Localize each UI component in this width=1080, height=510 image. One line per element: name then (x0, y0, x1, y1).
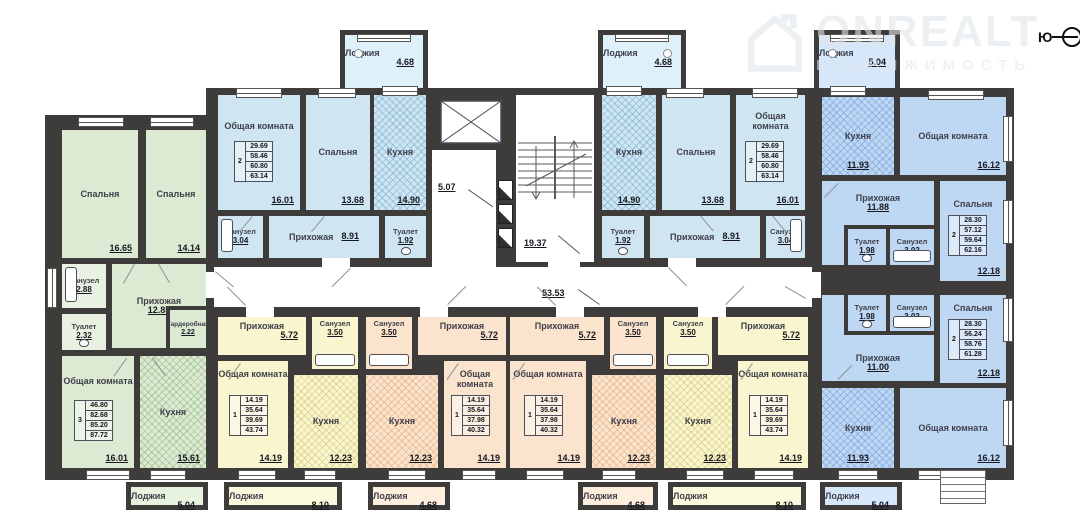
room-label: Прихожая (535, 321, 579, 331)
room-area: 8.91 (341, 232, 359, 242)
room-area: 14.19 (477, 454, 500, 464)
toilet-icon (618, 247, 628, 255)
apartment-stamp: 228.30 57.12 59.64 62.16 (948, 215, 987, 256)
stamp-value: 35.64 (761, 406, 788, 416)
stamp-value: 46.80 (86, 401, 113, 411)
elevator-icon (440, 100, 502, 144)
room-area: 14.19 (779, 454, 802, 464)
elevator-lobby (432, 150, 496, 267)
room-label: Спальня (677, 147, 716, 157)
loggia: Лоджия 8.10 (224, 482, 342, 510)
column-marker (663, 49, 672, 58)
room-area: 5.72 (280, 331, 298, 341)
balcony-door (838, 470, 878, 480)
stamp-rooms: 2 (235, 142, 246, 182)
window (752, 88, 798, 98)
window (47, 268, 57, 308)
door-opening (322, 258, 350, 267)
room-wc: Туалет 1.92 (385, 216, 426, 258)
compass-south-label: Ю (1038, 29, 1052, 45)
shaft-icon (498, 204, 513, 224)
room-label: Прихожая (741, 321, 785, 331)
toilet-icon (401, 247, 411, 255)
compass-rose-icon (1062, 27, 1080, 47)
entrance-steps (940, 470, 986, 504)
room-wc: Туалет 1.92 (602, 216, 644, 258)
shaft-icon (498, 228, 513, 248)
window (1003, 200, 1013, 244)
room-kitchen: Кухня 14.90 (602, 95, 656, 210)
room-label: Общая комната (918, 131, 987, 141)
room-bathroom: Санузел 3.50 (366, 317, 412, 369)
room-bedroom: Спальня 228.30 57.12 59.64 62.16 12.18 (940, 181, 1006, 281)
room-label: Прихожая (289, 232, 333, 242)
stamp-value: 87.72 (86, 431, 113, 441)
room-area: 11.00 (867, 363, 889, 373)
room-living: Общая комната 114.19 35.64 37.98 40.32 1… (444, 361, 506, 468)
stamp-value: 43.74 (241, 426, 268, 436)
room-area: 4.68 (396, 58, 414, 68)
door-opening (556, 307, 584, 317)
window (86, 470, 130, 480)
loggia: Лоджия 4.68 (598, 30, 686, 88)
room-label: Кухня (389, 416, 415, 426)
stamp-value: 35.64 (463, 406, 490, 416)
apartment-stamp: 229.69 58.46 60.80 63.14 (745, 141, 784, 182)
stamp-value: 39.69 (241, 416, 268, 426)
door-opening (807, 272, 821, 298)
stamp-value: 57.12 (960, 226, 987, 236)
stamp-rooms: 1 (525, 396, 536, 436)
stamp-rooms: 3 (75, 401, 86, 441)
room-bathroom: Санузел 3.50 (610, 317, 656, 369)
room-label: Кухня (845, 131, 871, 141)
bathtub-icon (315, 354, 355, 366)
room-label: Общая комната (444, 369, 506, 390)
room-label: Общая комната (513, 369, 582, 379)
stamp-value: 35.64 (241, 406, 268, 416)
room-bedroom: Спальня 13.68 (662, 95, 730, 210)
room-area: 5.72 (480, 331, 498, 341)
window (1003, 400, 1013, 446)
stamp-value: 40.32 (463, 426, 490, 436)
room-label: Кухня (616, 147, 642, 157)
room-kitchen: Кухня 12.23 (366, 375, 438, 468)
room-bathroom: Санузел 2.88 (62, 264, 106, 308)
stamp-value: 63.14 (757, 172, 784, 182)
stamp-value: 14.19 (241, 396, 268, 406)
loggia: Лоджия 4.68 (368, 482, 450, 510)
stamp-value: 28.30 (960, 216, 987, 226)
room-kitchen: Кухня 11.93 (822, 388, 894, 468)
loggia: Лоджия 5.04 (126, 482, 208, 510)
room-bathroom: Санузел 3.03 (890, 295, 934, 331)
door-opening (420, 307, 448, 317)
loggia: Лоджия 4.68 (340, 30, 428, 88)
window (1003, 116, 1013, 162)
room-area: 3.50 (327, 329, 343, 338)
room-wc: Туалет 2.32 (62, 314, 106, 350)
window (150, 117, 194, 127)
apartment-stamp: 228.30 56.24 58.76 61.28 (948, 319, 987, 360)
room-bathroom: Санузел 3.50 (312, 317, 358, 369)
window (238, 470, 276, 480)
toilet-icon (862, 320, 872, 328)
room-area: 15.61 (177, 454, 200, 464)
stamp-value: 43.74 (761, 426, 788, 436)
loggia-window (357, 34, 412, 42)
balcony-door (602, 470, 636, 480)
stamp-rooms: 2 (746, 142, 757, 182)
room-area: 16.01 (105, 454, 128, 464)
stamp-value: 37.98 (463, 416, 490, 426)
balcony-door (388, 470, 426, 480)
bathtub-icon (221, 219, 233, 252)
room-area: 8.10 (311, 501, 329, 510)
room-label: Общая комната (63, 376, 132, 386)
room-wc: Туалет 1.98 (848, 229, 886, 265)
room-area: 16.01 (271, 196, 294, 206)
room-living: Общая комната 16.12 (900, 388, 1006, 468)
room-kitchen: Кухня 12.23 (294, 375, 358, 468)
stamp-value: 14.19 (536, 396, 563, 406)
window (1003, 298, 1013, 342)
room-area: 8.91 (722, 232, 740, 242)
room-label: Спальня (157, 189, 196, 199)
room-label: Прихожая (240, 321, 284, 331)
room-living: Общая комната 16.12 (900, 97, 1006, 175)
watermark-house-icon (742, 11, 808, 73)
room-label: Общая комната (738, 369, 807, 379)
stamp-value: 85.20 (86, 421, 113, 431)
loggia: Лоджия 4.68 (578, 482, 658, 510)
room-area: 14.90 (602, 196, 656, 206)
room-label: Спальня (954, 303, 993, 313)
room-hallway: Прихожая 5.72 (510, 317, 604, 355)
window (928, 90, 984, 100)
stamp-value: 56.24 (960, 330, 987, 340)
stamp-value: 37.98 (536, 416, 563, 426)
stamp-value: 58.46 (757, 152, 784, 162)
lobby-area: 5.07 (438, 182, 456, 192)
room-area: 4.68 (419, 501, 437, 510)
stamp-value: 58.76 (960, 340, 987, 350)
stairs-area: 19.37 (524, 238, 547, 248)
corridor (214, 267, 812, 307)
watermark-subtitle: НЕДВИЖИМОСТЬ (816, 58, 1039, 73)
balcony-door (686, 470, 724, 480)
stamp-rooms: 1 (230, 396, 241, 436)
room-label: Общая комната (736, 111, 805, 132)
bathtub-icon (65, 267, 77, 302)
room-label: Кухня (160, 407, 186, 417)
room-area: 11.93 (822, 454, 894, 464)
watermark-brand: ONREALT (816, 10, 1039, 54)
window (462, 470, 496, 480)
room-area: 14.90 (397, 196, 420, 206)
room-bathroom: Санузел 3.04 (766, 216, 805, 258)
room-label: Кухня (845, 423, 871, 433)
room-area: 12.23 (409, 454, 432, 464)
room-area: 14.14 (177, 244, 200, 254)
room-kitchen: Кухня 15.61 (140, 356, 206, 468)
stamp-value: 62.16 (960, 246, 987, 256)
stamp-rooms: 1 (452, 396, 463, 436)
apartment-stamp: 114.19 35.64 39.69 43.74 (229, 395, 268, 436)
window (236, 88, 282, 98)
room-wc: Туалет 1.98 (848, 295, 886, 331)
room-bedroom: Спальня 14.14 (146, 130, 206, 258)
room-label: Кухня (685, 416, 711, 426)
room-bedroom: Спальня 16.65 (62, 130, 138, 258)
column-marker (354, 49, 363, 58)
room-bedroom: Спальня 228.30 56.24 58.76 61.28 12.18 (940, 295, 1006, 383)
stamp-value: 29.69 (757, 142, 784, 152)
loggia-window (615, 34, 670, 42)
stamp-value: 29.69 (246, 142, 273, 152)
balcony-door (304, 470, 336, 480)
room-area: 5.72 (782, 331, 800, 341)
room-area: 1.92 (615, 237, 631, 246)
floorplan-canvas: Лоджия 4.68 Лоджия 4.68 Лоджия 5.04 Лодж… (0, 0, 1080, 510)
door-opening (246, 307, 274, 317)
room-kitchen: Кухня 11.93 (822, 97, 894, 175)
stamp-value: 40.32 (536, 426, 563, 436)
apartment-stamp: 114.19 35.64 39.69 43.74 (749, 395, 788, 436)
door-opening (548, 258, 580, 267)
loggia: Лоджия 5.04 (820, 482, 902, 510)
room-area: 16.12 (977, 454, 1000, 464)
apartment-stamp: 229.69 58.46 60.80 63.14 (234, 141, 273, 182)
window (78, 117, 124, 127)
stamp-value: 82.68 (86, 411, 113, 421)
stamp-value: 14.19 (761, 396, 788, 406)
room-area: 5.04 (177, 501, 195, 510)
toilet-icon (79, 339, 89, 347)
room-area: 12.85 (148, 306, 171, 316)
room-area: 4.68 (627, 501, 645, 510)
apartment-stamp: 114.19 35.64 37.98 40.32 (451, 395, 490, 436)
balcony-door (382, 86, 418, 96)
room-area: 11.88 (867, 203, 889, 213)
stamp-rooms: 2 (949, 320, 960, 360)
room-area: 3.04 (233, 237, 249, 246)
stamp-rooms: 1 (750, 396, 761, 436)
room-label: Спальня (954, 199, 993, 209)
watermark-text: ONREALT НЕДВИЖИМОСТЬ (816, 10, 1039, 73)
room-area: 3.50 (381, 329, 397, 338)
room-area: 14.19 (557, 454, 580, 464)
stamp-value: 39.69 (761, 416, 788, 426)
room-label: Кухня (313, 416, 339, 426)
room-area: 12.23 (703, 454, 726, 464)
room-bathroom: Санузел 3.03 (890, 229, 934, 265)
room-label: Гардеробная (167, 321, 209, 328)
room-area: 13.68 (341, 196, 364, 206)
room-area: 5.04 (871, 501, 889, 510)
room-area: 2.22 (181, 329, 195, 337)
room-hallway: Прихожая 8.91 (269, 216, 379, 258)
room-area: 12.18 (977, 369, 1000, 379)
room-kitchen: Кухня 12.23 (664, 375, 732, 468)
door-opening (698, 307, 726, 317)
door-opening (668, 258, 696, 267)
window (754, 470, 794, 480)
room-hallway: Прихожая 5.72 (218, 317, 306, 355)
room-kitchen: Кухня 12.23 (592, 375, 656, 468)
bathtub-icon (369, 354, 409, 366)
window (318, 88, 356, 98)
toilet-icon (862, 254, 872, 262)
shaft-icon (498, 180, 513, 200)
stamp-value: 60.80 (757, 162, 784, 172)
stamp-value: 63.14 (246, 172, 273, 182)
room-area: 1.92 (398, 237, 414, 246)
room-area: 3.50 (680, 329, 696, 338)
stairs-icon (518, 136, 592, 206)
loggia: Лоджия 8.10 (668, 482, 806, 510)
room-living: Общая комната 346.80 82.68 85.20 87.72 1… (62, 356, 134, 468)
room-living: Общая комната 229.69 58.46 60.80 63.14 1… (736, 95, 805, 210)
room-area: 11.93 (822, 161, 894, 171)
bathtub-icon (790, 219, 802, 252)
room-bathroom: Санузел 3.04 (218, 216, 263, 258)
window (666, 88, 704, 98)
room-wardrobe: Гардеробная 2.22 (170, 310, 206, 348)
room-area: 3.50 (625, 329, 641, 338)
room-area: 4.68 (654, 58, 672, 68)
room-hallway: Прихожая 5.72 (718, 317, 808, 355)
stamp-value: 59.64 (960, 236, 987, 246)
room-living: Общая комната 114.19 35.64 39.69 43.74 1… (738, 361, 808, 468)
door-opening (206, 272, 215, 298)
room-area: 5.72 (578, 331, 596, 341)
bathtub-icon (667, 354, 708, 366)
bathtub-icon (613, 354, 653, 366)
bathtub-icon (893, 316, 931, 328)
bathtub-icon (893, 250, 931, 262)
balcony-door (830, 86, 866, 96)
room-label: Прихожая (440, 321, 484, 331)
room-area: 13.68 (701, 196, 724, 206)
room-hallway: Прихожая 5.72 (418, 317, 506, 355)
watermark: ONREALT НЕДВИЖИМОСТЬ (742, 10, 1039, 73)
stamp-value: 28.30 (960, 320, 987, 330)
room-bedroom: Спальня 13.68 (306, 95, 370, 210)
balcony-door (150, 470, 186, 480)
room-area: 12.23 (627, 454, 650, 464)
stamp-rooms: 2 (949, 216, 960, 256)
balcony-door (606, 86, 642, 96)
room-area: 2.88 (76, 286, 92, 295)
room-label: Общая комната (224, 121, 293, 131)
stamp-value: 35.64 (536, 406, 563, 416)
room-living: Общая комната 114.19 35.64 37.98 40.32 1… (510, 361, 586, 468)
apartment-stamp: 114.19 35.64 37.98 40.32 (524, 395, 563, 436)
room-kitchen: Кухня 14.90 (374, 95, 426, 210)
room-label: Прихожая (670, 232, 714, 242)
room-area: 14.19 (259, 454, 282, 464)
room-living: Общая комната 229.69 58.46 60.80 63.14 1… (218, 95, 300, 210)
room-area: 16.12 (977, 161, 1000, 171)
room-area: 16.65 (109, 244, 132, 254)
stamp-value: 61.28 (960, 350, 987, 360)
apartment-stamp: 346.80 82.68 85.20 87.72 (74, 400, 113, 441)
room-bathroom: Санузел 3.50 (664, 317, 712, 369)
room-label: Общая комната (918, 423, 987, 433)
room-area: 16.01 (776, 196, 799, 206)
room-label: Кухня (387, 147, 413, 157)
room-label: Спальня (319, 147, 358, 157)
room-label: Спальня (81, 189, 120, 199)
room-area: 12.18 (977, 267, 1000, 277)
stamp-value: 60.80 (246, 162, 273, 172)
stamp-value: 14.19 (463, 396, 490, 406)
room-area: 12.23 (329, 454, 352, 464)
window (526, 470, 564, 480)
room-label: Кухня (611, 416, 637, 426)
stamp-value: 58.46 (246, 152, 273, 162)
room-area: 8.10 (775, 501, 793, 510)
